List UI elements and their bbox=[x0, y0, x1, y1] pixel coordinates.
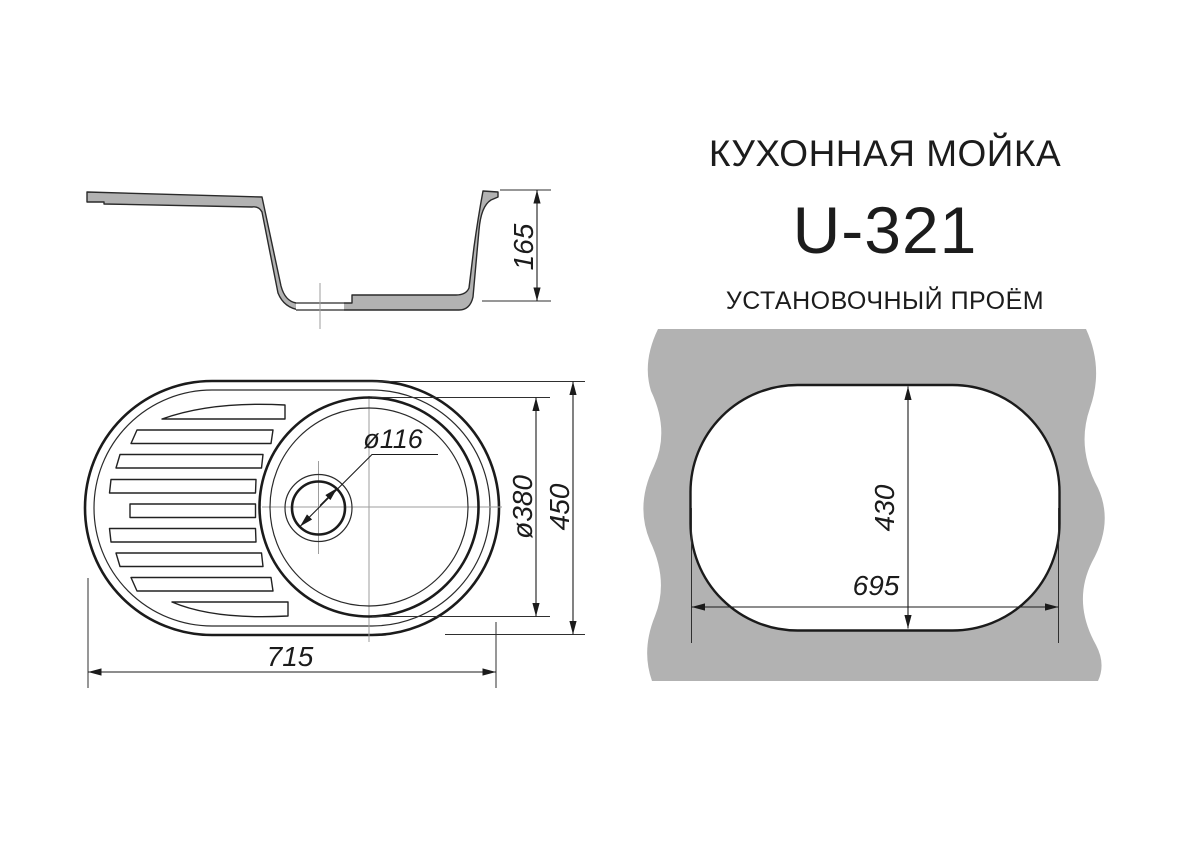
drainboard-rib bbox=[130, 504, 256, 518]
cutout-width-dim-label: 430 bbox=[869, 484, 900, 531]
depth-dim-label: 165 bbox=[508, 223, 539, 270]
drain-dim-arrow2 bbox=[320, 488, 337, 506]
width-dim-label: 450 bbox=[544, 483, 575, 530]
drainboard-rib bbox=[116, 455, 263, 469]
drainboard-rib bbox=[162, 404, 285, 419]
drainboard-rib bbox=[131, 578, 273, 592]
cutout-length-dim-label: 695 bbox=[853, 570, 900, 601]
drainboard-rib bbox=[131, 430, 273, 444]
drainboard-rib bbox=[116, 553, 263, 567]
drainboard-rib bbox=[172, 602, 288, 617]
drain-dim-label: ø116 bbox=[363, 424, 424, 454]
sink-profile-section bbox=[87, 191, 498, 310]
technical-drawing-page: КУХОННАЯ МОЙКА U-321 УСТАНОВОЧНЫЙ ПРОЁМ … bbox=[0, 0, 1200, 846]
sink-drawing-canvas: 165 bbox=[0, 0, 1200, 846]
drainboard-rib bbox=[110, 480, 257, 494]
top-plan-view: ø116 ø380 450 715 bbox=[85, 381, 585, 688]
side-section-view: 165 bbox=[87, 190, 551, 329]
drainboard-rib bbox=[110, 529, 257, 543]
drainboard-ribs bbox=[110, 404, 289, 616]
installation-cutout-view: 430 695 bbox=[643, 329, 1104, 681]
length-dim-label: 715 bbox=[267, 641, 314, 672]
bowl-dim-label: ø380 bbox=[507, 475, 538, 539]
